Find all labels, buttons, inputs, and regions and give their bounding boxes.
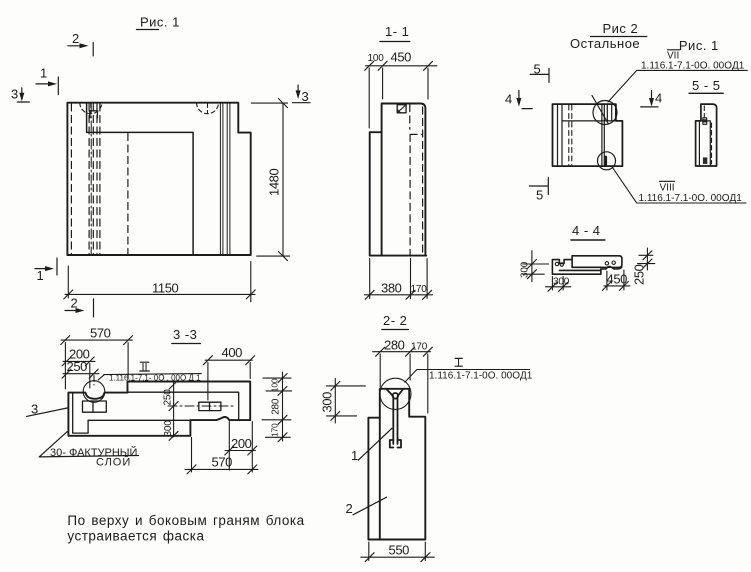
svg-text:100: 100	[368, 53, 385, 64]
svg-text:570: 570	[212, 455, 233, 470]
svg-text:II: II	[142, 362, 148, 374]
svg-text:1: 1	[351, 448, 358, 463]
svg-text:300: 300	[320, 392, 335, 413]
svg-text:250: 250	[632, 264, 647, 285]
svg-text:1.116.1-7.1-0O. 00OД1: 1.116.1-7.1-0O. 00OД1	[429, 371, 533, 382]
svg-text:450: 450	[607, 272, 628, 287]
svg-text:По верху и боковым граням блок: По верху и боковым граням блока	[67, 513, 304, 528]
svg-text:1.116.1-7.1-0O. 00OД1: 1.116.1-7.1-0O. 00OД1	[639, 193, 743, 204]
svg-text:250: 250	[67, 359, 88, 374]
svg-text:1.116.1-7.1-0O. 00OД1: 1.116.1-7.1-0O. 00OД1	[641, 61, 745, 72]
svg-text:Рис 2: Рис 2	[603, 21, 639, 36]
svg-text:280: 280	[384, 338, 405, 353]
svg-text:300: 300	[520, 261, 531, 278]
svg-text:170: 170	[411, 342, 428, 353]
svg-text:2: 2	[346, 501, 353, 516]
svg-text:Остальное: Остальное	[570, 36, 640, 51]
svg-text:I: I	[457, 358, 460, 370]
svg-text:300: 300	[553, 277, 570, 288]
svg-text:250: 250	[163, 389, 174, 406]
svg-text:4: 4	[655, 91, 662, 106]
svg-text:200: 200	[231, 436, 252, 451]
svg-text:2- 2: 2- 2	[383, 313, 407, 328]
svg-text:2: 2	[72, 31, 79, 46]
svg-text:1480: 1480	[267, 169, 282, 196]
svg-text:300: 300	[163, 420, 174, 437]
svg-text:100: 100	[270, 378, 280, 392]
svg-text:3 -3: 3 -3	[173, 327, 197, 342]
svg-text:VIII: VIII	[660, 183, 675, 194]
svg-text:1: 1	[40, 66, 47, 81]
svg-text:1- 1: 1- 1	[385, 24, 409, 39]
svg-text:280: 280	[271, 398, 282, 415]
svg-text:400: 400	[222, 345, 243, 360]
svg-text:380: 380	[381, 281, 402, 296]
svg-text:2: 2	[71, 296, 78, 311]
svg-text:Рис. 1: Рис. 1	[140, 15, 180, 30]
svg-text:устраивается фаска: устраивается фаска	[67, 529, 204, 544]
svg-text:4 - 4: 4 - 4	[572, 223, 601, 238]
svg-text:СЛОЙ: СЛОЙ	[96, 456, 131, 469]
svg-text:5: 5	[536, 188, 543, 203]
svg-text:Рис. 1: Рис. 1	[679, 38, 719, 53]
svg-text:5 - 5: 5 - 5	[692, 78, 721, 93]
svg-text:550: 550	[389, 543, 410, 558]
svg-text:170: 170	[270, 423, 280, 437]
svg-text:1: 1	[37, 268, 44, 283]
svg-text:3: 3	[11, 87, 18, 102]
svg-text:1150: 1150	[152, 281, 179, 296]
svg-text:170: 170	[411, 284, 428, 295]
svg-text:4: 4	[505, 92, 512, 107]
svg-text:450: 450	[391, 50, 412, 65]
svg-text:570: 570	[90, 326, 111, 341]
svg-text:3: 3	[302, 89, 309, 104]
svg-text:1.116.1-7.1- 0O . 00О Д 1: 1.116.1-7.1- 0O . 00О Д 1	[109, 374, 201, 383]
